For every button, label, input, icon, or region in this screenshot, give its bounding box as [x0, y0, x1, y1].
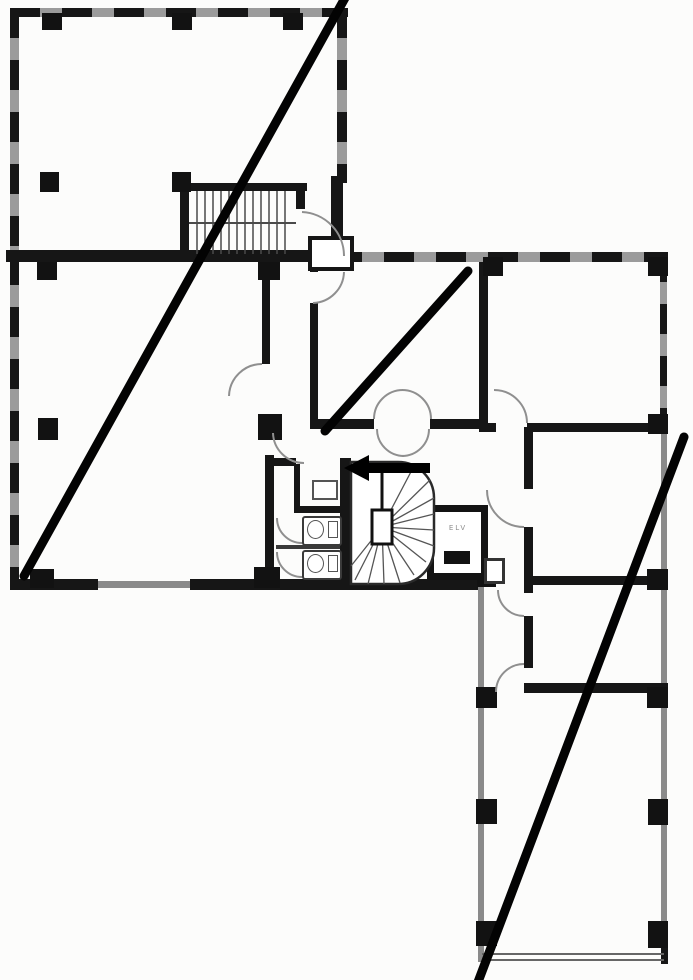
door-arc: [374, 390, 403, 419]
column: [172, 172, 191, 192]
exterior-wall-west-sw: [10, 255, 19, 588]
wc-tank-icon: [328, 555, 338, 572]
wc-fixture: [302, 550, 342, 580]
door-arc: [487, 490, 524, 527]
wc-tank-icon: [328, 521, 338, 538]
stair-direction-arrow: [344, 455, 430, 481]
vestibule-wall-right: [331, 176, 343, 240]
column: [648, 414, 668, 434]
stairwell-wall-top: [180, 183, 307, 191]
se-room1-wall-left-lower: [524, 527, 533, 578]
spiral-staircase: [351, 462, 434, 584]
column: [476, 687, 497, 708]
column: [476, 799, 497, 824]
door-arc: [377, 429, 404, 456]
column: [30, 569, 54, 588]
exterior-wall-east-nw: [337, 8, 347, 183]
column: [483, 257, 503, 276]
middle-room-wall-right: [479, 262, 488, 428]
door-arc: [402, 429, 429, 456]
door-arc: [494, 390, 527, 423]
stairwell-door-jamb: [296, 183, 305, 209]
door-arc: [277, 518, 302, 543]
wc-bowl-icon: [307, 520, 324, 539]
exterior-wall-south-sw-left: [10, 579, 98, 590]
middle-room-wall-south-right: [430, 419, 479, 429]
door-arc: [229, 364, 262, 396]
column: [40, 172, 59, 192]
service-closet: [484, 558, 505, 584]
stairwell-wall-left: [180, 183, 189, 256]
column: [42, 13, 62, 30]
spiral-stair-outline: [351, 462, 434, 584]
elevator-door-opening: [427, 524, 434, 548]
column: [37, 262, 57, 280]
exterior-wall-west-se: [478, 562, 484, 962]
spiral-stair-treads: [351, 466, 434, 584]
ne-room-wall-south-right: [527, 423, 668, 432]
se-room1-wall-left-upper: [524, 427, 533, 489]
column: [476, 921, 497, 946]
annotation-strike-line-2: [325, 271, 468, 431]
ne-room-wall-south-left: [479, 423, 496, 432]
middle-room-wall-south-left: [310, 419, 374, 429]
door-arc: [402, 390, 431, 419]
wc-bowl-icon: [307, 554, 324, 573]
column: [647, 569, 668, 590]
toilet-wall-left: [265, 455, 274, 573]
window-wall-south-sw: [98, 581, 190, 588]
column: [254, 567, 280, 588]
elevator-counterweight: [444, 551, 470, 564]
exterior-wall-east-ne: [660, 252, 667, 434]
wc-fixture: [302, 516, 342, 546]
spiral-stair-center-post: [372, 510, 392, 544]
column: [258, 414, 282, 440]
straight-stair-treads: [189, 191, 296, 254]
floor-plan-sheet: ELV: [0, 0, 693, 980]
exterior-wall-south-sw-right: [190, 579, 482, 590]
se-room2-wall-left-lower: [524, 616, 533, 668]
toilet-wall-top: [274, 458, 296, 466]
column: [647, 687, 668, 708]
se-room2-wall-left-upper: [524, 585, 533, 593]
door-arc: [498, 590, 524, 616]
sink-fixture: [312, 480, 338, 500]
column: [648, 799, 668, 825]
door-arc: [313, 272, 344, 303]
vestibule-duct-closet: [308, 236, 354, 271]
door-arc: [277, 552, 302, 577]
elevator-label: ELV: [436, 524, 480, 532]
exterior-wall-west-nw: [10, 8, 19, 255]
elevator-shaft: [427, 505, 488, 580]
door-arc: [496, 664, 524, 692]
column: [38, 418, 58, 440]
column: [648, 921, 668, 948]
window-wall-south-se: [482, 953, 664, 961]
annotation-strike-line-3: [478, 437, 684, 980]
column: [172, 13, 192, 30]
middle-room-wall-left: [310, 303, 318, 428]
column: [648, 257, 668, 276]
interior-wall-nw-south: [6, 250, 345, 262]
column: [258, 262, 280, 280]
column: [283, 13, 303, 30]
